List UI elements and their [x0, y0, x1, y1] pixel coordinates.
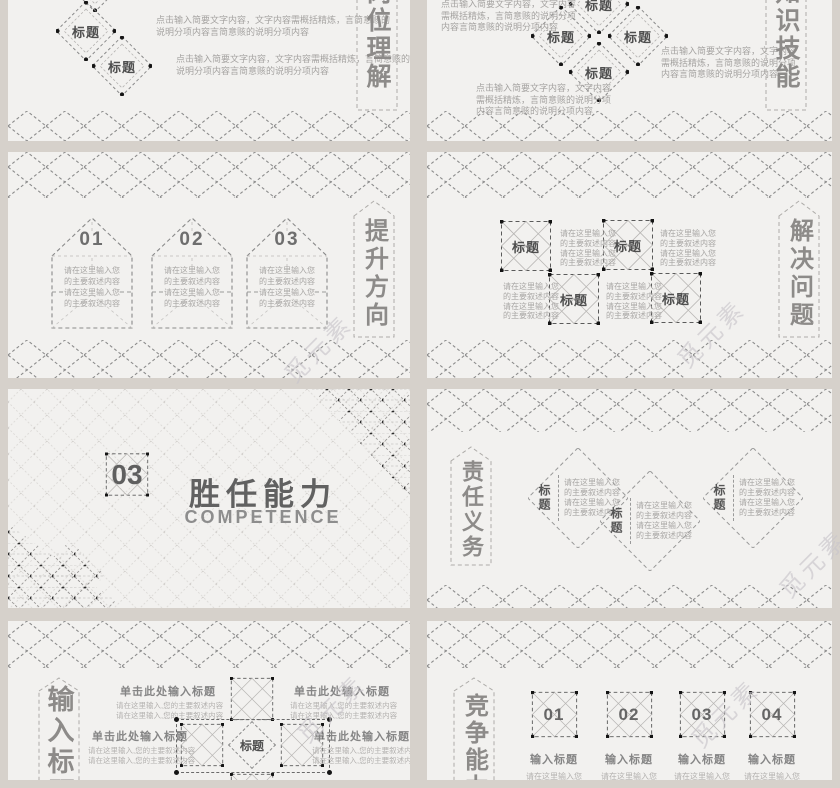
item-description: 请在这里输入您的主要叙述内容请在这里输入您的主要叙述内容 [50, 265, 134, 309]
center-title-diamond: 标题 [228, 721, 276, 769]
house-shape-item: 03 请在这里输入您的主要叙述内容请在这里输入您的主要叙述内容 [245, 216, 329, 330]
slide-thumbnail-knowledge: 标题 标题 标题 标题 点击输入简要文字内容，文字内容需概括精炼，言简意赅的说明… [427, 0, 832, 141]
diamond-title: 标题 [536, 484, 553, 512]
lattice-band [427, 152, 832, 198]
vertical-banner: 竞争能力 [453, 677, 495, 780]
diamond-title: 标题 [228, 721, 276, 769]
slide-solve: 标题 标题 标题 标题 请在这里输入您的主要叙述内容请在这里输入您的主要叙述内容… [427, 152, 832, 378]
item-description: 请在这里输入您的主要叙述内容请在这里输入您的主要叙述内容 [739, 478, 795, 517]
lattice-band [8, 152, 410, 198]
divider [733, 475, 734, 521]
vertical-banner: 知识技能 [765, 0, 807, 111]
item-title: 输入标题 [664, 751, 740, 767]
item-number: 02 [150, 229, 234, 251]
item-title: 输入标题 [591, 751, 667, 767]
item-description: 请在这里输入您的主要叙述内容请在这里输入您 [591, 771, 667, 780]
slide-knowledge: 标题 标题 标题 标题 点击输入简要文字内容，文字内容需概括精炼，言简意赅的说明… [427, 0, 832, 141]
slide-thumbnail-section: 03 胜任能力 COMPETENCE [8, 389, 410, 608]
item-number: 03 [245, 229, 329, 251]
content-diamond: 标题 请在这里输入您的主要叙述内容请在这里输入您的主要叙述内容 [703, 448, 803, 548]
vertical-banner: 岗位理解 [356, 0, 398, 111]
slide-compete: 竞争能力 01 输入标题 请在这里输入您的主要叙述内容请在这里输入您 02 输入… [427, 621, 832, 780]
pattern-square [230, 773, 274, 780]
banner-title: 解决问题 [782, 218, 817, 330]
content-diamond: 标题 请在这里输入您的主要叙述内容请在这里输入您的主要叙述内容 [600, 471, 700, 571]
slide-duty: 责任义务 标题 请在这里输入您的主要叙述内容请在这里输入您的主要叙述内容 标题 … [427, 389, 832, 608]
slide-section: 03 胜任能力 COMPETENCE [8, 389, 410, 608]
banner-title: 提升方向 [357, 218, 392, 330]
item-description: 请在这里输入您的主要叙述内容请在这里输入您的主要叙述内容 [503, 282, 559, 321]
pattern-square [230, 677, 274, 721]
diamond-title: 标题 [608, 507, 625, 535]
vertical-banner: 解决问题 [778, 200, 820, 338]
vertical-banner: 提升方向 [353, 200, 395, 338]
diamond-title: 标题 [92, 36, 152, 96]
vertical-banner: 责任义务 [450, 446, 492, 566]
item-title: 输入标题 [734, 751, 810, 767]
pattern-square: 标题 [500, 220, 552, 272]
pattern-square: 01 [531, 691, 578, 738]
divider [558, 475, 559, 521]
lattice-band [8, 340, 410, 378]
banner-title: 竞争能力 [457, 693, 492, 780]
pattern-square [180, 723, 224, 767]
item-description: 请在这里输入您的主要叙述内容请在这里输入您的主要叙述内容 [245, 265, 329, 309]
slide-thumbnail-improve: 01 请在这里输入您的主要叙述内容请在这里输入您的主要叙述内容 02 请在这里输… [8, 152, 410, 378]
item-title: 输入标题 [516, 751, 592, 767]
slide-thumbnail-position: 标题 标题 标题 点击输入简要文字内容，文字内容需概括精炼，言简意赅的说明分项内… [8, 0, 410, 141]
pattern-square: 02 [606, 691, 653, 738]
item-description: 请在这里输入您的主要叙述内容请在这里输入您的主要叙述内容 [606, 282, 662, 321]
divider [630, 498, 631, 544]
lattice-band [8, 111, 410, 141]
house-shape-item: 01 请在这里输入您的主要叙述内容请在这里输入您的主要叙述内容 [50, 216, 134, 330]
banner-title: 责任义务 [455, 460, 487, 560]
lattice-band [427, 585, 832, 608]
item-description: 请在这里输入您的主要叙述内容请在这里输入您的主要叙述内容 [150, 265, 234, 309]
slide-thumbnail-duty: 责任义务 标题 请在这里输入您的主要叙述内容请在这里输入您的主要叙述内容 标题 … [427, 389, 832, 608]
banner-title: 输入标题 [40, 685, 79, 780]
slide-thumbnail-compete: 竞争能力 01 输入标题 请在这里输入您的主要叙述内容请在这里输入您 02 输入… [427, 621, 832, 780]
slide-thumbnail-solve: 标题 标题 标题 标题 请在这里输入您的主要叙述内容请在这里输入您的主要叙述内容… [427, 152, 832, 378]
numbered-item: 02 输入标题 请在这里输入您的主要叙述内容请在这里输入您 [591, 691, 667, 780]
item-number: 01 [531, 691, 578, 738]
lattice-band [427, 389, 832, 432]
body-text: 点击输入简要文字内容，文字内容需概括精炼，言简意赅的说明分项内容言简意赅的说明分… [441, 0, 576, 34]
house-shape-item: 02 请在这里输入您的主要叙述内容请在这里输入您的主要叙述内容 [150, 216, 234, 330]
section-subtitle: COMPETENCE [138, 507, 388, 528]
item-description: 请在这里输入您的主要叙述内容请在这里输入您 [516, 771, 592, 780]
body-text: 点击输入简要文字内容，文字内容需概括精炼，言简意赅的说明分项内容言简意赅的说明分… [476, 83, 611, 118]
lattice-band [427, 340, 832, 378]
body-text: 点击输入简要文字内容，文字内容需概括精炼，言简意赅的说明分项内容言简意赅的说明分… [156, 15, 390, 38]
decor-diamond: 标题 [92, 36, 152, 96]
square-title: 标题 [500, 220, 552, 272]
banner-title: 岗位理解 [359, 0, 395, 91]
item-description: 请在这里输入您的主要叙述内容请在这里输入您的主要叙述内容 [560, 229, 616, 268]
slide-position: 标题 标题 标题 点击输入简要文字内容，文字内容需概括精炼，言简意赅的说明分项内… [8, 0, 410, 141]
item-description: 请在这里输入您的主要叙述内容请在这里输入您的主要叙述内容 [660, 229, 716, 268]
vertical-banner: 输入标题 [38, 677, 80, 780]
item-description: 请在这里输入您的主要叙述内容请在这里输入您 [664, 771, 740, 780]
diamond-title: 标题 [711, 484, 728, 512]
slide-improve: 01 请在这里输入您的主要叙述内容请在这里输入您的主要叙述内容 02 请在这里输… [8, 152, 410, 378]
item-description: 请在这里输入您的主要叙述内容请在这里输入您 [734, 771, 810, 780]
item-number: 02 [606, 691, 653, 738]
numbered-item: 01 输入标题 请在这里输入您的主要叙述内容请在这里输入您 [516, 691, 592, 780]
template-preview-sheet: 标题 标题 标题 点击输入简要文字内容，文字内容需概括精炼，言简意赅的说明分项内… [0, 0, 840, 788]
banner-title: 知识技能 [768, 0, 804, 91]
item-number: 01 [50, 229, 134, 251]
lattice-band [8, 621, 410, 668]
item-description: 请在这里输入您的主要叙述内容请在这里输入您的主要叙述内容 [636, 501, 692, 540]
lattice-band [427, 621, 832, 668]
